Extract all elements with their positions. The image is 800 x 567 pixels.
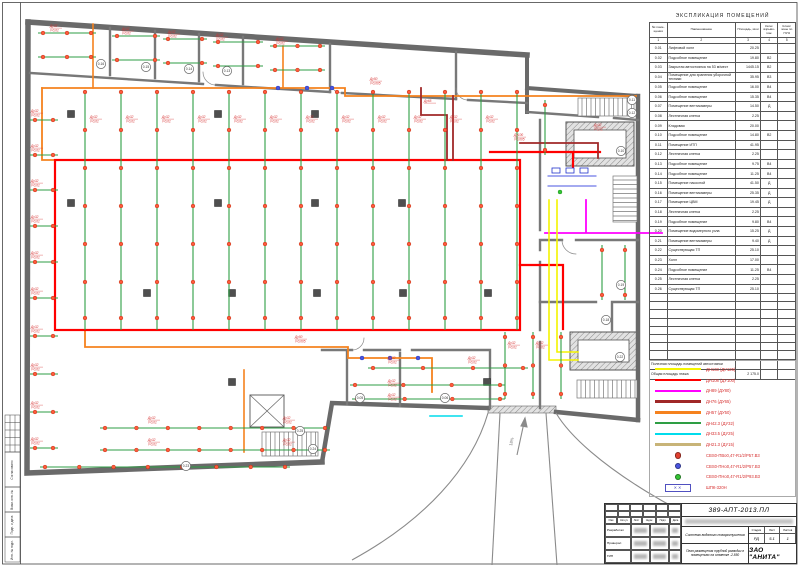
legend-label: СВS0-ПНо0,47-R1/2/Р93.В3: [706, 474, 760, 479]
svg-text:Ду32: Ду32: [341, 115, 350, 119]
sprinkler-dot: [135, 426, 139, 430]
pipe-size-label: Ду32i=0,01: [30, 144, 43, 152]
room-bubble: 0.23: [181, 461, 190, 470]
frame-margin-label: Согласовано: [10, 460, 14, 479]
sprinkler-dot: [600, 248, 604, 252]
sprinkler-dot: [43, 465, 47, 469]
sprinkler-dot: [166, 426, 170, 430]
explication-col-header: Класс зоны по ПУЭ: [778, 23, 796, 38]
sprinkler-dot: [227, 204, 231, 208]
sprinkler-dot: [503, 364, 507, 368]
sprinkler-dot: [479, 242, 483, 246]
sig-col-header: №док: [642, 517, 656, 524]
pipe-size-label: Ду32i=0,01: [147, 416, 160, 424]
explication-row: 0.19Подсобное помещение9.80В4: [650, 217, 796, 227]
pipe-size-label: Ду32i=0,01: [30, 437, 43, 445]
pipe-size-label: Ду32i=0,01: [147, 438, 160, 446]
signature-row: Проверил: [605, 537, 681, 550]
sprinkler-dot: [403, 397, 407, 401]
pipe-size-label: Ду32i=0,01: [269, 115, 282, 123]
svg-text:i=0,01: i=0,01: [122, 31, 131, 35]
sprinkler-dot: [371, 316, 375, 320]
sprinkler-dot: [227, 280, 231, 284]
sprinkler-dot: [263, 128, 267, 132]
svg-text:i=0,01: i=0,01: [486, 119, 495, 123]
svg-text:0.11: 0.11: [629, 98, 635, 102]
explication-row: 0.14Подсобное помещение11.25В4: [650, 169, 796, 179]
svg-text:i=0,01: i=0,01: [306, 119, 315, 123]
sheet-label: Лист: [765, 527, 781, 533]
line-swatch: [650, 400, 706, 402]
explication-row: 0.05Подсобное помещение16.00В4: [650, 83, 796, 93]
legend-label: СВS0-ПНо0,47-R1/2/Р57.В3: [706, 464, 760, 469]
sprinkler-dot: [543, 148, 547, 152]
line-swatch: [650, 443, 706, 445]
sprinkler-dot: [335, 242, 339, 246]
sprinkler-dot: [521, 366, 525, 370]
line-swatch: [650, 390, 706, 392]
sprinkler-dot: [292, 448, 296, 452]
sprinkler-dot: [191, 128, 195, 132]
explication-col-header: Катег. взрыво- пож.: [760, 23, 778, 38]
sprinkler-dot: [371, 166, 375, 170]
line-swatch: [650, 379, 706, 381]
sprinkler-dot: [249, 465, 253, 469]
line-swatch: [650, 422, 706, 424]
svg-text:i=0,01: i=0,01: [31, 148, 40, 152]
sprinkler-dot: [371, 204, 375, 208]
pipe-size-label: Ду32i=0,01: [413, 115, 426, 123]
svg-text:Ду32: Ду32: [275, 37, 284, 41]
sprinkler-dot: [263, 316, 267, 320]
svg-text:Ду50: Ду50: [369, 77, 378, 81]
column: [68, 111, 75, 118]
pipe-legend: ДН133 (ДУ125)ДН108 (ДУ100)ДН89 (ДУ80)ДН7…: [649, 360, 796, 497]
svg-text:i=0,01: i=0,01: [31, 367, 40, 371]
sprinkler-dot: [153, 34, 157, 38]
stage-value: РД: [749, 534, 765, 543]
elevator: [250, 395, 284, 427]
sprinkler-dot: [155, 280, 159, 284]
sprinkler-dot: [299, 166, 303, 170]
high-temp-sprinkler-dot: [558, 190, 562, 194]
sprinkler-dot: [407, 242, 411, 246]
explication-row: 0.21Помещение вентикамеры9.40Д: [650, 236, 796, 246]
column: [400, 290, 407, 297]
svg-text:Ду100: Ду100: [513, 133, 523, 137]
legend-label: ДН57 (ДУ50): [706, 410, 731, 415]
room-bubble: 0.05: [355, 393, 364, 402]
sprinkler-dot: [119, 128, 123, 132]
svg-text:Ду32: Ду32: [30, 215, 39, 219]
line-swatch: [650, 368, 706, 370]
sprinkler-dot: [41, 55, 45, 59]
explication-row: 0.18Лестничная клетка2.25: [650, 207, 796, 217]
pipe-size-label: Ду32i=0,01: [125, 115, 138, 123]
pendent-sprinkler-dot: [276, 86, 280, 90]
sprinkler-dot: [65, 55, 69, 59]
sprinkler-dot: [371, 90, 375, 94]
explication-row: 0.11Помещение ИТП41.95: [650, 140, 796, 150]
sprinkler-dot: [299, 316, 303, 320]
pendent-sprinkler-dot: [305, 86, 309, 90]
explication-row: 0.01Лифтовой холл20.25: [650, 44, 796, 54]
sprinkler-dot: [115, 34, 119, 38]
sprinkler-dot: [515, 128, 519, 132]
frame-margin-label: Инв. № подл.: [10, 540, 14, 560]
svg-text:0.10: 0.10: [618, 149, 625, 153]
sprinkler-dot: [83, 166, 87, 170]
explication-col-header: Площадь, кв.м: [736, 23, 761, 38]
sprinkler-dot: [33, 296, 37, 300]
sprinkler-dot: [33, 372, 37, 376]
svg-text:i=0,01: i=0,01: [31, 113, 40, 117]
sprinkler-dot: [479, 166, 483, 170]
legend-label: ДН42.3 (ДУ32): [706, 421, 734, 426]
frame-margin-label: Взам. инв. №: [10, 490, 14, 510]
svg-text:i=0,01: i=0,01: [31, 219, 40, 223]
svg-text:Ду65: Ду65: [423, 99, 432, 103]
svg-text:i=0,01: i=0,01: [283, 442, 292, 446]
svg-text:0.16: 0.16: [98, 62, 105, 66]
svg-text:0.14: 0.14: [186, 67, 193, 71]
sprinkler-dot: [191, 204, 195, 208]
sprinkler-dot: [153, 58, 157, 62]
sprinkler-dot: [33, 188, 37, 192]
sprinkler-dot: [33, 334, 37, 338]
svg-text:0.18: 0.18: [603, 318, 610, 322]
sprinkler-dot: [353, 383, 357, 387]
pipe-size-label: Ду32i=0,01: [387, 379, 400, 387]
explication-row: 0.26Существующая ТП25.10: [650, 284, 796, 294]
svg-text:Ду32: Ду32: [282, 416, 291, 420]
svg-text:i=0,01: i=0,01: [90, 119, 99, 123]
sprinkler-dot: [197, 426, 201, 430]
pipe-size-label: Ду32i=0,01: [30, 179, 43, 187]
svg-text:i=0,01: i=0,01: [50, 28, 59, 32]
svg-text:0.15: 0.15: [143, 65, 150, 69]
cabinet-swatch: ✕✕: [650, 484, 706, 492]
sprinkler-dot: [299, 242, 303, 246]
legend-label: ДН108 (ДУ100): [706, 378, 735, 383]
svg-text:Ду32: Ду32: [215, 33, 224, 37]
svg-text:i=0,01: i=0,01: [31, 329, 40, 333]
pipe-size-label: Ду32i=0,01: [197, 115, 210, 123]
svg-text:i=0,01: i=0,01: [388, 397, 397, 401]
svg-text:Ду32: Ду32: [147, 438, 156, 442]
sprinkler-dot: [318, 44, 322, 48]
sprinkler-dot: [503, 392, 507, 396]
svg-text:Ду32: Ду32: [593, 123, 602, 127]
room-bubble: 0.24: [308, 444, 317, 453]
explication-table: № поме- щенияНаименованиеПлощадь, кв.мКа…: [649, 22, 796, 380]
dot-swatch: [650, 474, 706, 481]
svg-text:0.05: 0.05: [357, 396, 364, 400]
sprinkler-dot: [103, 448, 107, 452]
sprinkler-dot: [33, 260, 37, 264]
sprinkler-dot: [227, 90, 231, 94]
sprinkler-dot: [263, 90, 267, 94]
svg-text:Ду32: Ду32: [413, 115, 422, 119]
sprinkler-dot: [443, 316, 447, 320]
legend-item: ДН89 (ДУ80): [650, 386, 795, 395]
room-bubble: 0.14: [184, 64, 193, 73]
sprinkler-dot: [498, 383, 502, 387]
explication-row: 0.15Помещение насосной41.50Д: [650, 178, 796, 188]
column: [215, 200, 222, 207]
sprinkler-dot: [443, 280, 447, 284]
svg-text:i=0,005: i=0,005: [295, 339, 306, 343]
sprinkler-dot: [83, 316, 87, 320]
pipe-size-label: Ду32i=0,01: [30, 215, 43, 223]
pipe-size-label: Ду32i=0,01: [341, 115, 354, 123]
sprinkler-dot: [515, 242, 519, 246]
sprinkler-dot: [443, 166, 447, 170]
sprinkler-dot: [335, 166, 339, 170]
explication-row: 0.03Закрытая автостоянка на 53 м/мест144…: [650, 63, 796, 73]
svg-text:Ду32: Ду32: [30, 109, 39, 113]
svg-text:Ду32: Ду32: [467, 356, 476, 360]
svg-text:i=0,01: i=0,01: [594, 127, 603, 131]
svg-text:i=0,005: i=0,005: [370, 81, 381, 85]
sprinkler-dot: [155, 128, 159, 132]
sprinkler-dot: [407, 166, 411, 170]
sprinkler-dot: [531, 364, 535, 368]
sprinkler-dot: [407, 128, 411, 132]
sig-col-header: Дата: [670, 517, 681, 524]
sprinkler-dot: [299, 204, 303, 208]
svg-text:i=0,01: i=0,01: [388, 383, 397, 387]
pipe-size-label: Ду100i=0,005: [513, 133, 526, 141]
sprinkler-dot: [531, 392, 535, 396]
sprinkler-dot: [371, 128, 375, 132]
explication-row: 0.16Помещение вентикамеры25.35Д: [650, 188, 796, 198]
sprinkler-dot: [155, 166, 159, 170]
sprinkler-dot: [200, 37, 204, 41]
legend-item: ДН133 (ДУ125): [650, 365, 795, 374]
sprinkler-dot: [191, 166, 195, 170]
sprinkler-dot: [227, 166, 231, 170]
sig-col-header: Подп.: [656, 517, 670, 524]
sprinkler-dot: [263, 280, 267, 284]
sig-col-header: Лист: [631, 517, 642, 524]
legend-label: СВS0-ПВо0,47-R1/2/Р57.В3: [706, 453, 760, 458]
svg-text:Ду32: Ду32: [282, 438, 291, 442]
stage-label: Стадия: [749, 527, 765, 533]
svg-text:i=0,01: i=0,01: [414, 119, 423, 123]
column: [485, 290, 492, 297]
sprinkler-dot: [371, 280, 375, 284]
legend-item: ДН108 (ДУ100): [650, 376, 795, 385]
pipe-size-label: Ду32i=0,01: [30, 109, 43, 117]
room-bubble: 0.25: [295, 426, 304, 435]
high-temp-sprinklers: [558, 190, 562, 194]
sprinkler-dot: [498, 397, 502, 401]
sprinkler-dot: [41, 31, 45, 35]
sprinkler-dot: [515, 166, 519, 170]
sprinkler-dot: [83, 242, 87, 246]
svg-text:Ду32: Ду32: [377, 115, 386, 119]
sprinkler-dot: [33, 410, 37, 414]
sprinkler-dot: [200, 61, 204, 65]
sprinkler-dot: [559, 392, 563, 396]
sprinkler-dot: [146, 465, 150, 469]
explication-col-header: Наименование: [667, 23, 736, 38]
pipe-size-label: Ду32i=0,01: [282, 416, 295, 424]
room-bubble: 0.19: [616, 280, 625, 289]
sprinkler-dot: [443, 204, 447, 208]
pipe-du80: [545, 200, 662, 233]
pipe-size-label: Ду32i=0,01: [30, 287, 43, 295]
explication-row: 0.17Помещение ЦВМ19.45Д: [650, 198, 796, 208]
document-number: 389-АПТ-2013.ПЛ: [682, 504, 796, 517]
pendent-sprinkler-dot: [330, 86, 334, 90]
explication-col-header: № поме- щения: [650, 23, 668, 38]
sprinkler-dot: [229, 426, 233, 430]
pipe-size-label: Ду32i=0,01: [449, 115, 462, 123]
sprinkler-dot: [335, 128, 339, 132]
sprinkler-dot: [421, 366, 425, 370]
sprinkler-dot: [89, 55, 93, 59]
sprinkler-dot: [51, 296, 55, 300]
sprinkler-dot: [296, 44, 300, 48]
sprinkler-dot: [479, 128, 483, 132]
sprinkler-dot: [299, 280, 303, 284]
pipe-ring-du100: [55, 152, 600, 330]
structural-columns: [68, 111, 492, 386]
sprinkler-dot: [450, 383, 454, 387]
legend-item: ДН21.3 (ДУ15): [650, 440, 795, 449]
svg-text:i=0,01: i=0,01: [31, 441, 40, 445]
column: [399, 200, 406, 207]
explication-row: 0.07Помещение вентикамеры14.50Д: [650, 102, 796, 112]
sprinkler-dot: [215, 465, 219, 469]
sprinkler-dot: [515, 90, 519, 94]
svg-text:i=0,01: i=0,01: [234, 119, 243, 123]
svg-text:0.06: 0.06: [442, 396, 449, 400]
pipe-size-label: Ду50i=0,005: [294, 335, 307, 343]
stair-flight: [577, 380, 637, 398]
sprinkler-dot: [229, 448, 233, 452]
sprinkler-dot: [65, 31, 69, 35]
sprinkler-dot: [51, 372, 55, 376]
sprinkler-dot: [323, 448, 327, 452]
sprinkler-dot: [600, 293, 604, 297]
sprinkler-dot: [155, 242, 159, 246]
svg-text:Ду32: Ду32: [387, 393, 396, 397]
system-title: Система водяного пожаротушения: [682, 527, 749, 543]
line-swatch: [650, 433, 706, 435]
sprinkler-dot: [371, 242, 375, 246]
sprinkler-dot: [77, 465, 81, 469]
svg-text:Ду32: Ду32: [305, 115, 314, 119]
legend-item: СВS0-ПНо0,47-R1/2/Р57.В3: [650, 462, 795, 471]
sprinkler-dot: [51, 118, 55, 122]
sprinkler-dot: [51, 224, 55, 228]
sprinkler-dot: [401, 383, 405, 387]
svg-text:i=0,01: i=0,01: [198, 119, 207, 123]
legend-label: ДН76 (ДУ65): [706, 399, 731, 404]
pendent-sprinkler-dot: [416, 356, 420, 360]
sprinkler-dot: [623, 293, 627, 297]
svg-text:i=0,01: i=0,01: [31, 405, 40, 409]
sprinkler-dot: [33, 118, 37, 122]
sprinkler-dot: [89, 31, 93, 35]
sprinkler-dot: [623, 248, 627, 252]
sprinkler-dot: [479, 280, 483, 284]
svg-text:0.22: 0.22: [617, 355, 624, 359]
sprinkler-dot: [263, 204, 267, 208]
explication-row: 0.06Подсобное помещение15.35В4: [650, 92, 796, 102]
svg-text:i=0,01: i=0,01: [148, 442, 157, 446]
sprinkler-dot: [296, 68, 300, 72]
column: [229, 379, 236, 386]
pipe-size-label: Ду32i=0,01: [485, 115, 498, 123]
sprinkler-dot: [166, 61, 170, 65]
pipe-size-label: Ду32i=0,01: [89, 115, 102, 123]
sprinkler-dot: [33, 446, 37, 450]
explication-title: ЭКСПЛИКАЦИЯ ПОМЕЩЕНИЙ: [649, 13, 796, 19]
explication-row: 0.23Холл17.00: [650, 255, 796, 265]
column: [215, 111, 222, 118]
project-name-blurred: [682, 517, 796, 527]
svg-text:Ду32: Ду32: [125, 115, 134, 119]
svg-text:i=0,01: i=0,01: [283, 420, 292, 424]
sprinkler-dot: [33, 153, 37, 157]
pipe-size-label: Ду65: [423, 99, 436, 103]
sprinkler-dot: [559, 335, 563, 339]
sprinkler-dot: [318, 68, 322, 72]
svg-text:i=0,01: i=0,01: [31, 291, 40, 295]
svg-text:0.13: 0.13: [224, 69, 231, 73]
sprinkler-dot: [559, 364, 563, 368]
svg-text:i=0,01: i=0,01: [276, 41, 285, 45]
svg-text:i=0,01: i=0,01: [216, 37, 225, 41]
svg-text:i=0,01: i=0,01: [342, 119, 351, 123]
svg-text:i=0,01: i=0,01: [468, 360, 477, 364]
svg-text:Ду32: Ду32: [30, 287, 39, 291]
explication-row: 0.22Существующая ТП25.10: [650, 246, 796, 256]
legend-item: ДН57 (ДУ50): [650, 408, 795, 417]
legend-label: ДН133 (ДУ125): [706, 367, 735, 372]
sprinkler-dot: [83, 204, 87, 208]
sprinkler-dot: [543, 103, 547, 107]
sprinkler-dot: [33, 224, 37, 228]
sprinkler-dot: [83, 280, 87, 284]
svg-text:i=0,01: i=0,01: [388, 360, 397, 364]
svg-text:Ду32: Ду32: [197, 115, 206, 119]
explication-row: 0.09Кладовая20.00: [650, 121, 796, 131]
room-bubble: 0.16: [96, 59, 105, 68]
svg-text:Ду32: Ду32: [387, 379, 396, 383]
sprinkler-dot: [119, 316, 123, 320]
sprinkler-dot: [135, 448, 139, 452]
column: [68, 200, 75, 207]
svg-text:Ду32: Ду32: [30, 144, 39, 148]
sprinkler-dot: [515, 204, 519, 208]
sprinkler-dot: [103, 426, 107, 430]
svg-text:Ду50: Ду50: [294, 335, 303, 339]
room-bubble: 0.18: [601, 315, 610, 324]
room-bubble: 0.11: [627, 95, 636, 104]
svg-text:i=0,01: i=0,01: [378, 119, 387, 123]
sprinkler-dot: [407, 316, 411, 320]
stair-flight: [578, 98, 634, 116]
drawing-sheet: СогласованоВзам. инв. №Подп. и датаИнв. …: [0, 0, 800, 567]
pipe-size-label: Ду32i=0,01: [467, 356, 480, 364]
pipe-size-label: Ду50i=0,005: [369, 77, 382, 85]
pipe-size-label: Ду32i=0,01: [507, 341, 520, 349]
